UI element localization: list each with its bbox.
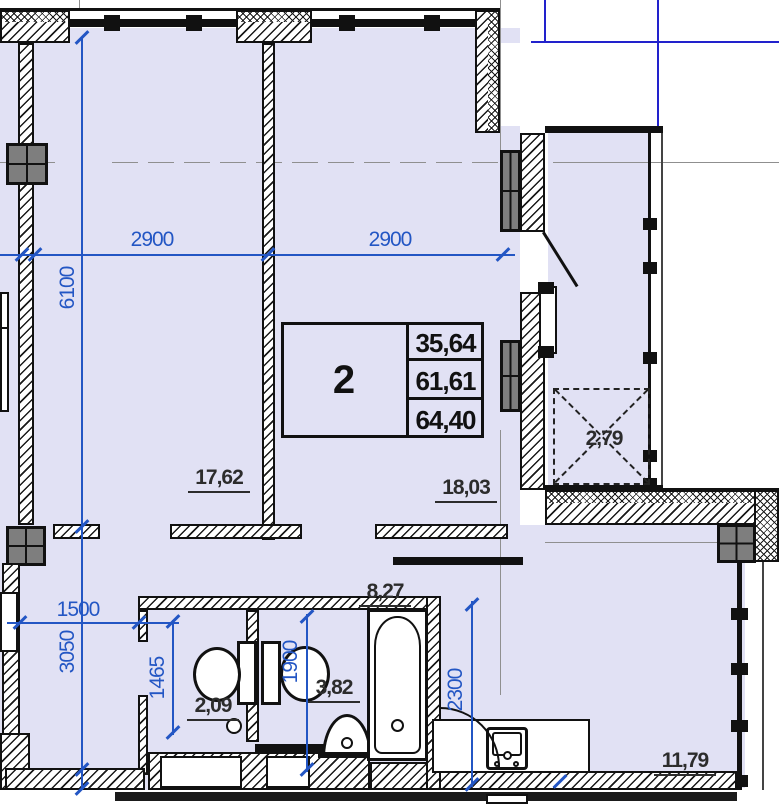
partition-wall-rooms xyxy=(262,43,275,540)
dimension-line xyxy=(81,38,83,790)
wall-insulation xyxy=(547,492,777,503)
axis-line xyxy=(500,0,501,170)
window-mullion xyxy=(424,15,440,31)
bathtub-inner xyxy=(374,616,421,754)
floor-slab-edge xyxy=(115,792,737,801)
balcony-glazing-outer xyxy=(661,133,663,490)
window-mullion xyxy=(339,15,355,31)
room-area-label-balcony: 2,79 xyxy=(578,427,630,452)
glazing-mullion xyxy=(731,608,748,620)
window-mullion xyxy=(186,15,202,31)
window-frame xyxy=(539,286,557,354)
vent-shaft xyxy=(160,756,242,788)
glazing-mullion xyxy=(731,663,748,675)
grid-line-vertical xyxy=(544,0,546,43)
sink-fragment xyxy=(486,794,528,804)
dimension-label-1465: 1465 xyxy=(146,628,170,728)
room-area-label-wc: 2,09 xyxy=(187,694,239,721)
floor-plan-canvas: 2 35,64 61,61 64,40 17,62 18,03 8,27 3,8… xyxy=(0,0,779,804)
window-mullion xyxy=(104,15,120,31)
axis-line xyxy=(112,162,512,163)
shaft-wall xyxy=(370,762,428,790)
dimension-label-1900: 1900 xyxy=(279,612,303,712)
wardrobe-divider xyxy=(0,327,9,329)
wall-insulation xyxy=(2,12,68,22)
bathtub-drain xyxy=(391,719,404,732)
dimension-line xyxy=(471,601,473,787)
glazing-mullion xyxy=(643,352,657,364)
window-band xyxy=(70,19,236,27)
window-mullion xyxy=(538,282,554,294)
room-area-label-room1: 17,62 xyxy=(188,466,250,493)
window-mullion xyxy=(538,346,554,358)
dimension-label-1500: 1500 xyxy=(28,598,128,622)
wall-segment xyxy=(170,524,302,539)
glazing-mullion xyxy=(643,218,657,230)
room-area-label-hall: 8,27 xyxy=(359,580,411,607)
column xyxy=(6,143,48,185)
hall-wall-bottom xyxy=(5,768,145,790)
kitchen-faucet xyxy=(503,751,512,760)
axis-line xyxy=(553,162,779,163)
dimension-label-2900-right: 2900 xyxy=(340,228,440,252)
wall-insulation xyxy=(488,12,498,131)
kitchen-glazing-outer xyxy=(762,562,764,790)
lintel-beam xyxy=(393,557,523,565)
room-area-label-room2: 18,03 xyxy=(435,476,497,503)
exterior-niche xyxy=(500,43,545,126)
dimension-line xyxy=(7,622,179,624)
wall-segment xyxy=(375,524,508,539)
grid-line-vertical xyxy=(657,0,659,133)
kitchen-wall-corner xyxy=(754,490,779,562)
dimension-label-6100: 6100 xyxy=(56,233,80,343)
apartment-number: 2 xyxy=(294,358,394,403)
balcony-wall-left xyxy=(520,133,545,232)
dimension-label-2900-left: 2900 xyxy=(102,228,202,252)
column xyxy=(717,524,756,563)
kitchen-faucet xyxy=(513,761,519,767)
wall-insulation xyxy=(238,12,310,22)
balcony-wall-top xyxy=(545,126,663,133)
kitchen-glazing xyxy=(737,562,742,790)
wardrobe xyxy=(0,292,9,412)
interior-wall-left xyxy=(18,43,34,525)
glazing-mullion xyxy=(731,720,748,732)
room-area-label-kitchen: 11,79 xyxy=(654,749,716,776)
column xyxy=(6,526,46,566)
grid-line-horizontal xyxy=(531,41,779,43)
column xyxy=(500,340,521,412)
window-band xyxy=(312,19,478,27)
area-table-divider xyxy=(409,397,484,400)
column xyxy=(500,150,521,232)
area-table-value: 35,64 xyxy=(409,328,482,359)
dimension-line xyxy=(172,620,174,735)
room-area-label-bathroom: 3,82 xyxy=(308,676,360,703)
area-table-value: 64,40 xyxy=(409,405,482,436)
toilet-tank xyxy=(261,641,281,705)
dimension-label-2300: 2300 xyxy=(444,640,468,740)
washbasin-faucet xyxy=(341,737,353,749)
area-table-value: 61,61 xyxy=(409,366,482,397)
glazing-mullion xyxy=(643,262,657,274)
